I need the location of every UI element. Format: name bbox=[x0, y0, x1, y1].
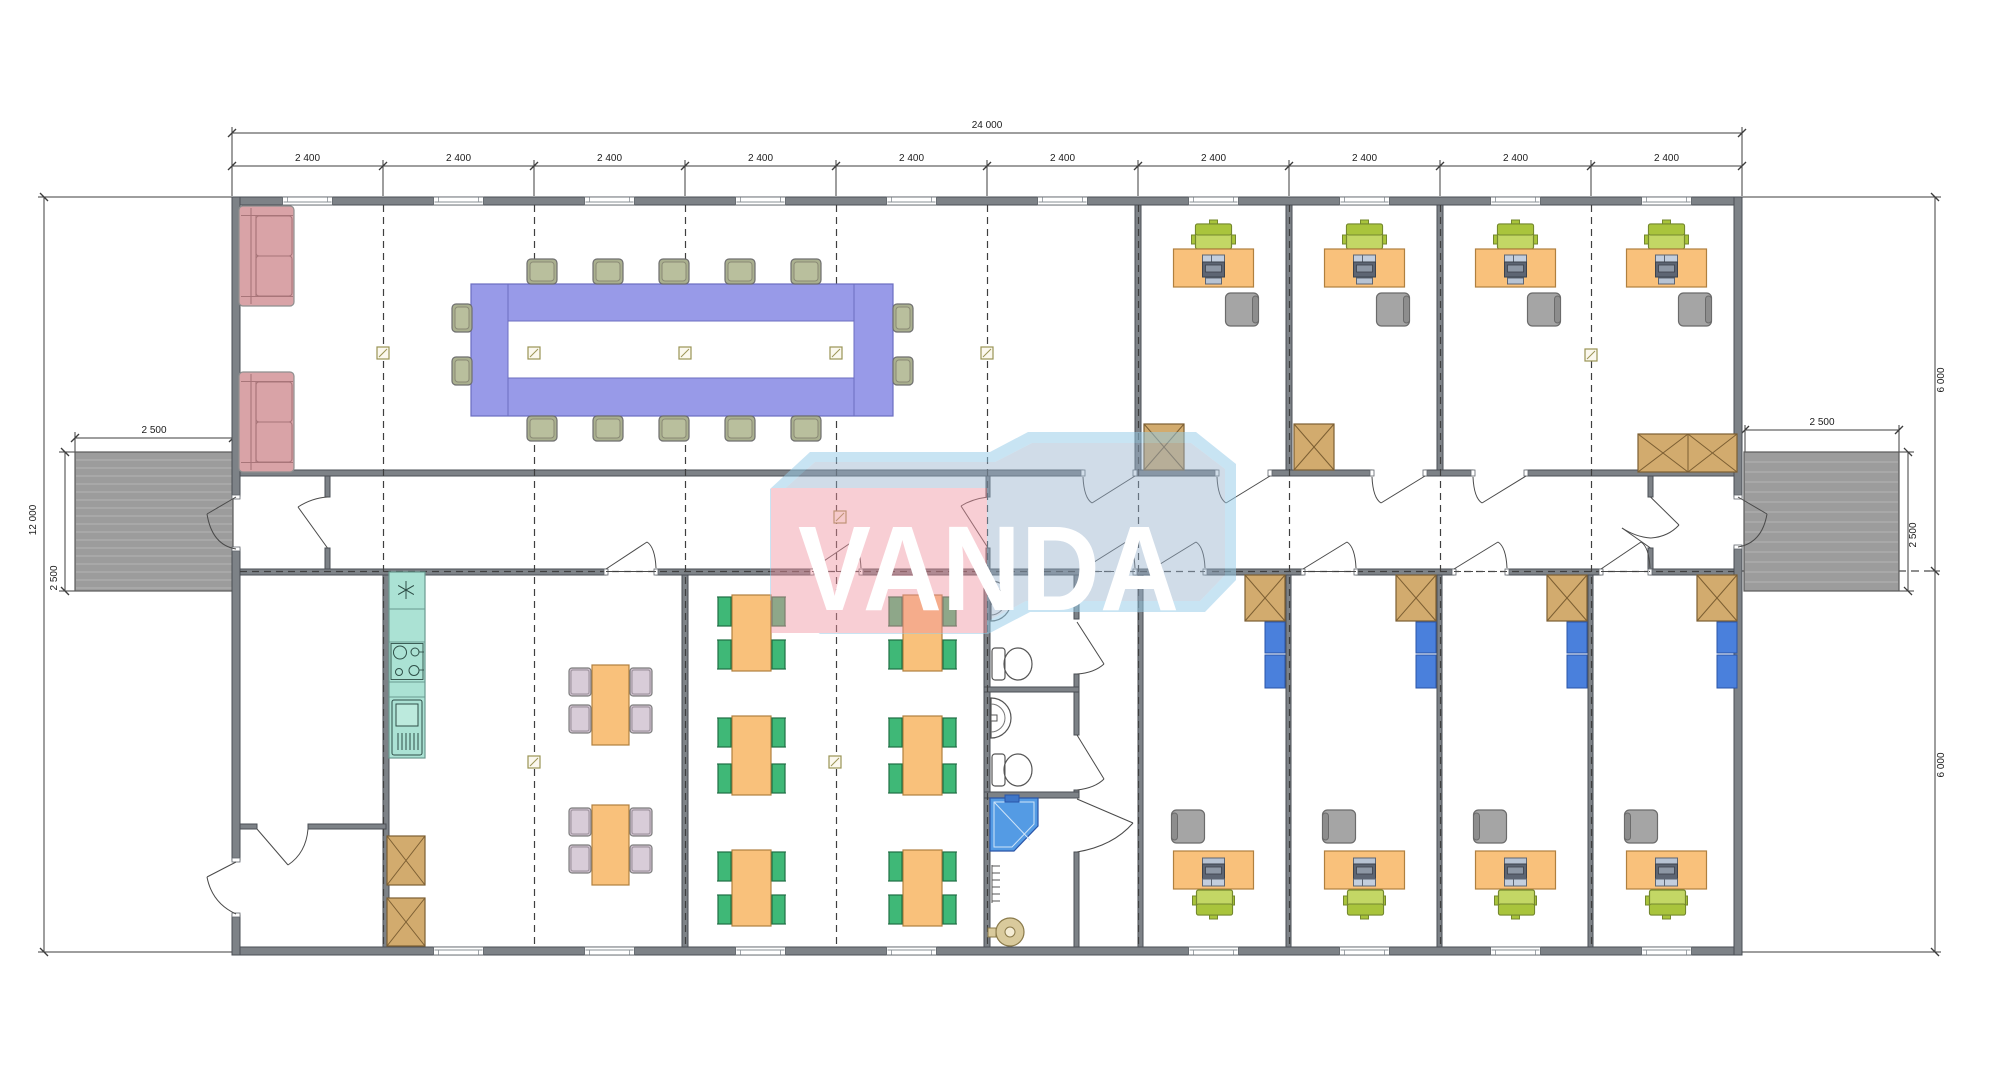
svg-text:2 400: 2 400 bbox=[1352, 153, 1377, 164]
svg-text:24 000: 24 000 bbox=[972, 120, 1003, 131]
svg-text:2 500: 2 500 bbox=[1809, 417, 1834, 428]
svg-text:2 400: 2 400 bbox=[748, 153, 773, 164]
svg-text:2 400: 2 400 bbox=[899, 153, 924, 164]
svg-text:2 400: 2 400 bbox=[597, 153, 622, 164]
svg-text:6 000: 6 000 bbox=[1936, 367, 1947, 392]
svg-text:2 400: 2 400 bbox=[446, 153, 471, 164]
svg-text:2 400: 2 400 bbox=[295, 153, 320, 164]
svg-text:2 500: 2 500 bbox=[1908, 522, 1919, 547]
svg-text:2 500: 2 500 bbox=[49, 565, 60, 590]
svg-text:2 400: 2 400 bbox=[1654, 153, 1679, 164]
svg-text:2 400: 2 400 bbox=[1201, 153, 1226, 164]
svg-text:VANDA: VANDA bbox=[798, 500, 1179, 636]
svg-text:2 400: 2 400 bbox=[1050, 153, 1075, 164]
svg-text:2 500: 2 500 bbox=[141, 425, 166, 436]
svg-text:12 000: 12 000 bbox=[28, 504, 39, 535]
svg-text:6 000: 6 000 bbox=[1936, 752, 1947, 777]
svg-text:2 400: 2 400 bbox=[1503, 153, 1528, 164]
